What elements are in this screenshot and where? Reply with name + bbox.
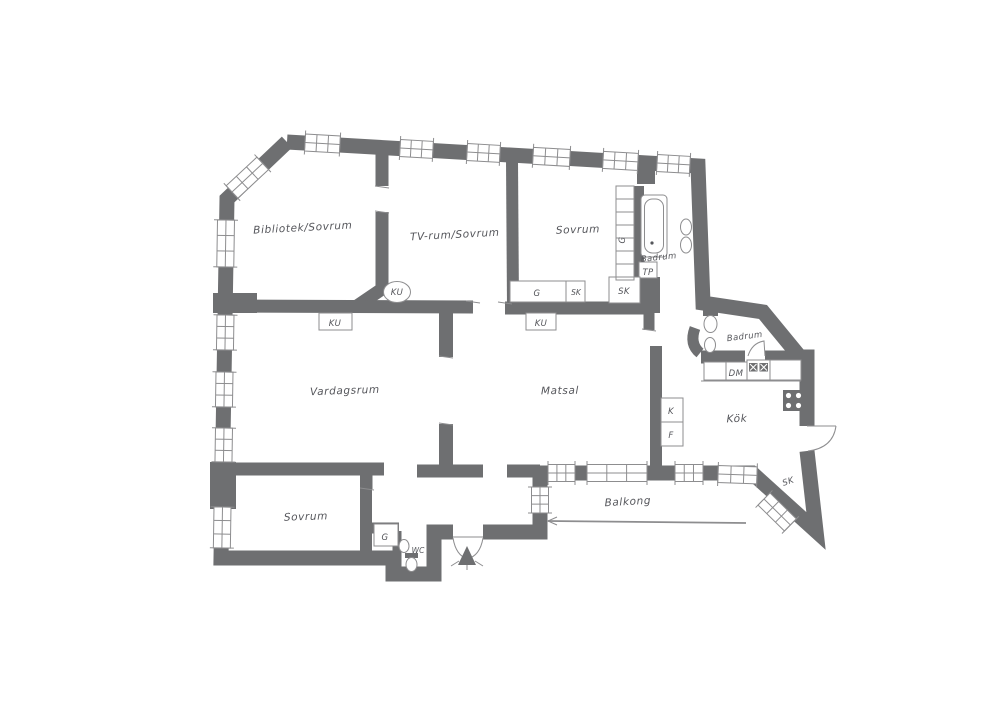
stove-icon — [783, 390, 804, 411]
label-kyl: K — [668, 407, 675, 417]
window-icon — [587, 461, 647, 485]
label-tv-rum-sovrum: TV-rum/Sovrum — [410, 227, 500, 244]
bathtub-icon — [641, 195, 667, 257]
window-icon — [210, 507, 235, 548]
label-frys: F — [668, 431, 673, 441]
label-ku-matsal: KU — [535, 319, 548, 329]
floor-plan: Bibliotek/Sovrum TV-rum/Sovrum Sovrum Ba… — [0, 0, 1000, 707]
window-icon — [212, 372, 237, 407]
window-icon — [675, 461, 703, 485]
label-g-strip: G — [618, 237, 628, 244]
label-matsal: Matsal — [541, 385, 579, 398]
label-bibliotek-sovrum: Bibliotek/Sovrum — [253, 219, 353, 236]
window-icon — [211, 428, 236, 462]
window-icon — [399, 136, 433, 162]
window-icon — [602, 148, 638, 174]
window-icon — [528, 487, 552, 513]
balcony-railing — [548, 517, 746, 525]
label-g-sovrum1: G — [534, 289, 541, 299]
label-vardagsrum: Vardagsrum — [310, 384, 380, 398]
wardrobe-strip — [616, 186, 634, 280]
entrance-arrow-icon — [451, 546, 483, 570]
label-wc: WC — [412, 546, 425, 555]
counter-right — [770, 360, 801, 380]
wc-toilet-icon — [405, 553, 418, 572]
label-sovrum-2: Sovrum — [284, 510, 329, 524]
kitchen-sink-icon — [747, 360, 770, 380]
window-icon — [466, 140, 500, 166]
label-balkong: Balkong — [604, 495, 651, 509]
window-icon — [213, 220, 238, 267]
label-tp: TP — [642, 268, 654, 278]
cabinet-boxes — [319, 186, 801, 546]
label-dm: DM — [729, 369, 744, 379]
label-sk-korridor: SK — [618, 287, 631, 297]
fixtures — [384, 195, 805, 572]
label-sovrum-1: Sovrum — [556, 223, 601, 237]
label-sk-sovrum1: SK — [571, 288, 582, 297]
window-icon — [548, 461, 575, 485]
label-ku-vardagsrum: KU — [329, 319, 342, 329]
label-kok: Kök — [726, 413, 748, 426]
label-sk-balkong: SK — [781, 475, 796, 488]
floor-plan-svg: Bibliotek/Sovrum TV-rum/Sovrum Sovrum Ba… — [0, 0, 1000, 707]
label-badrum-2: Badrum — [726, 330, 763, 344]
label-g-sovrum2: G — [382, 533, 389, 543]
wc-sink-icon — [399, 540, 409, 553]
badrum2-door-arc-icon — [748, 341, 765, 356]
kitchen-door-arc-icon — [807, 426, 836, 451]
window-icon — [532, 144, 570, 170]
window-icon — [213, 315, 238, 350]
window-icon — [304, 131, 340, 157]
laundry-ovals-icon — [681, 219, 692, 253]
label-ku-circle: KU — [391, 288, 404, 298]
toilet-icon — [703, 309, 718, 333]
window-icon — [656, 151, 690, 177]
counter-left — [704, 362, 726, 380]
sink-icon — [705, 338, 716, 353]
